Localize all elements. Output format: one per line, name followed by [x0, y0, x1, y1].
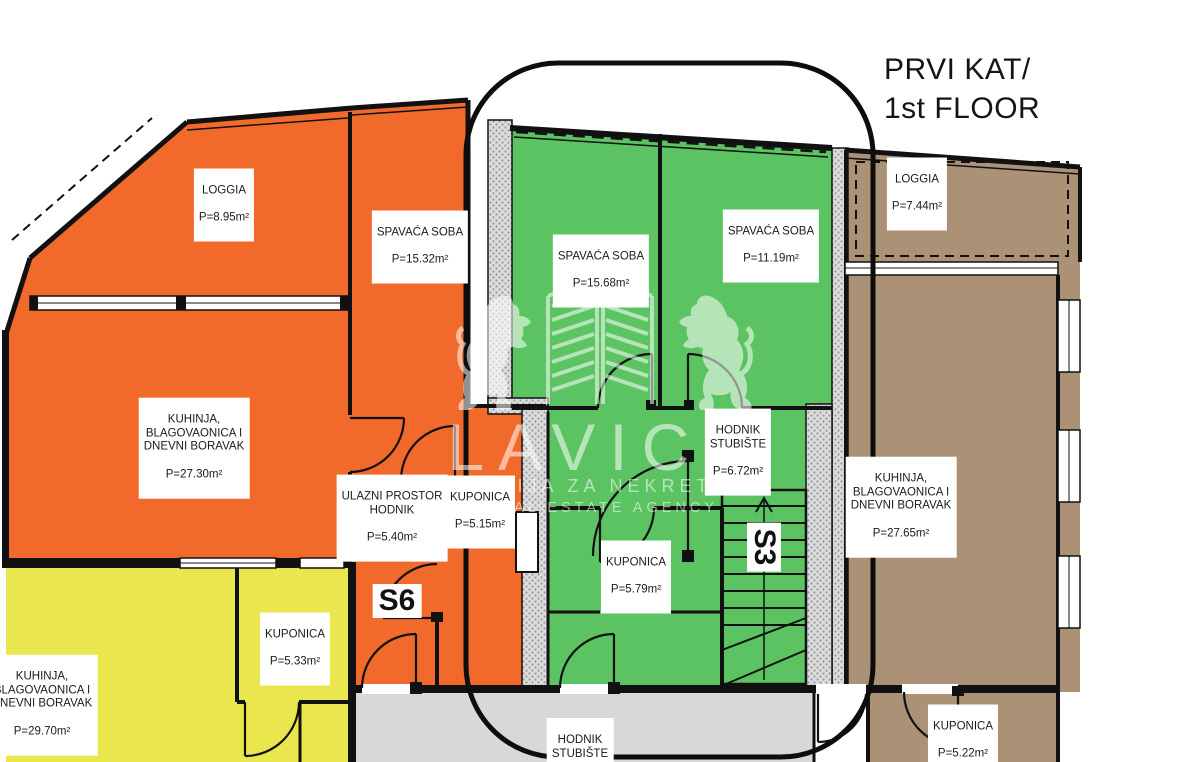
- room-name: ULAZNI PROSTOR HODNIK: [342, 490, 443, 518]
- room-name: HODNIK STUBIŠTE: [710, 424, 766, 452]
- room-label-orange-loggia: LOGGIA P=8.95m²: [194, 169, 254, 242]
- room-name: LOGGIA: [199, 184, 249, 198]
- room-label-brown-kitchen: KUHINJA, BLAGOVAONICA I DNEVNI BORAVAK P…: [846, 457, 957, 558]
- room-area: P=5.15m²: [450, 519, 510, 533]
- room-label-orange-kitchen: KUHINJA, BLAGOVAONICA I DNEVNI BORAVAK P…: [139, 398, 250, 499]
- room-label-green-bath: KUPONICA P=5.79m²: [601, 541, 671, 614]
- floorplan-page: LAVICO AGENCIJA ZA NEKRETNINE REAL ESTAT…: [0, 0, 1200, 762]
- room-label-green-bedroom-2: SPAVAĆA SOBA P=11.19m²: [723, 210, 819, 283]
- room-area: P=8.95m²: [199, 212, 249, 226]
- floor-title-line1: PRVI KAT/: [884, 50, 1040, 89]
- room-area: P=5.33m²: [265, 656, 325, 670]
- room-label-stair-hall: HODNIK STUBIŠTE P=16.79m²: [547, 718, 614, 762]
- room-name: HODNIK STUBIŠTE: [552, 734, 609, 762]
- room-area: P=11.19m²: [728, 253, 814, 267]
- room-area: P=29.70m²: [0, 726, 92, 740]
- room-name: KUPONICA: [265, 628, 325, 642]
- room-label-orange-bedroom: SPAVAĆA SOBA P=15.32m²: [372, 211, 468, 284]
- floor-title: PRVI KAT/ 1st FLOOR: [884, 50, 1040, 128]
- room-area: P=7.44m²: [892, 201, 942, 215]
- room-area: P=5.79m²: [606, 584, 666, 598]
- room-label-orange-entry: ULAZNI PROSTOR HODNIK P=5.40m²: [337, 475, 448, 562]
- room-area: P=6.72m²: [710, 466, 766, 480]
- room-name: KUHINJA, BLAGOVAONICA I DNEVNI BORAVAK: [144, 414, 245, 455]
- room-name: KUHINJA, BLAGOVAONICA I DNEVNI BORAVAK: [851, 473, 952, 514]
- room-label-orange-bath: KUPONICA P=5.15m²: [445, 476, 515, 549]
- room-label-brown-bath: KUPONICA P=5.22m²: [928, 705, 998, 762]
- vestibule-area: [814, 692, 868, 762]
- floor-title-line2: 1st FLOOR: [884, 89, 1040, 128]
- room-label-brown-loggia: LOGGIA P=7.44m²: [887, 158, 947, 231]
- room-area: P=15.32m²: [377, 254, 463, 268]
- room-name: KUPONICA: [450, 491, 510, 505]
- room-name: KUPONICA: [933, 720, 993, 734]
- room-name: SPAVAĆA SOBA: [728, 225, 814, 239]
- room-area: P=27.30m²: [144, 469, 245, 483]
- room-label-yellow-bath: KUPONICA P=5.33m²: [260, 613, 330, 686]
- room-name: SPAVAĆA SOBA: [558, 250, 644, 264]
- room-label-yellow-kitchen: KUHINJA, BLAGOVAONICA I DNEVNI BORAVAK P…: [0, 655, 97, 756]
- room-name: LOGGIA: [892, 173, 942, 187]
- unit-label-s3: S3: [747, 523, 781, 572]
- room-area: P=5.40m²: [342, 532, 443, 546]
- room-name: SPAVAĆA SOBA: [377, 226, 463, 240]
- room-area: P=15.68m²: [558, 278, 644, 292]
- unit-label-s6: S6: [373, 584, 422, 618]
- room-label-green-hall: HODNIK STUBIŠTE P=6.72m²: [705, 409, 771, 496]
- room-name: KUPONICA: [606, 556, 666, 570]
- room-area: P=27.65m²: [851, 528, 952, 542]
- watermark-tagline-en: REAL ESTATE AGENCY: [486, 500, 718, 516]
- room-name: KUHINJA, BLAGOVAONICA I DNEVNI BORAVAK: [0, 671, 92, 712]
- room-area: P=5.22m²: [933, 748, 993, 762]
- room-label-green-bedroom-1: SPAVAĆA SOBA P=15.68m²: [553, 235, 649, 308]
